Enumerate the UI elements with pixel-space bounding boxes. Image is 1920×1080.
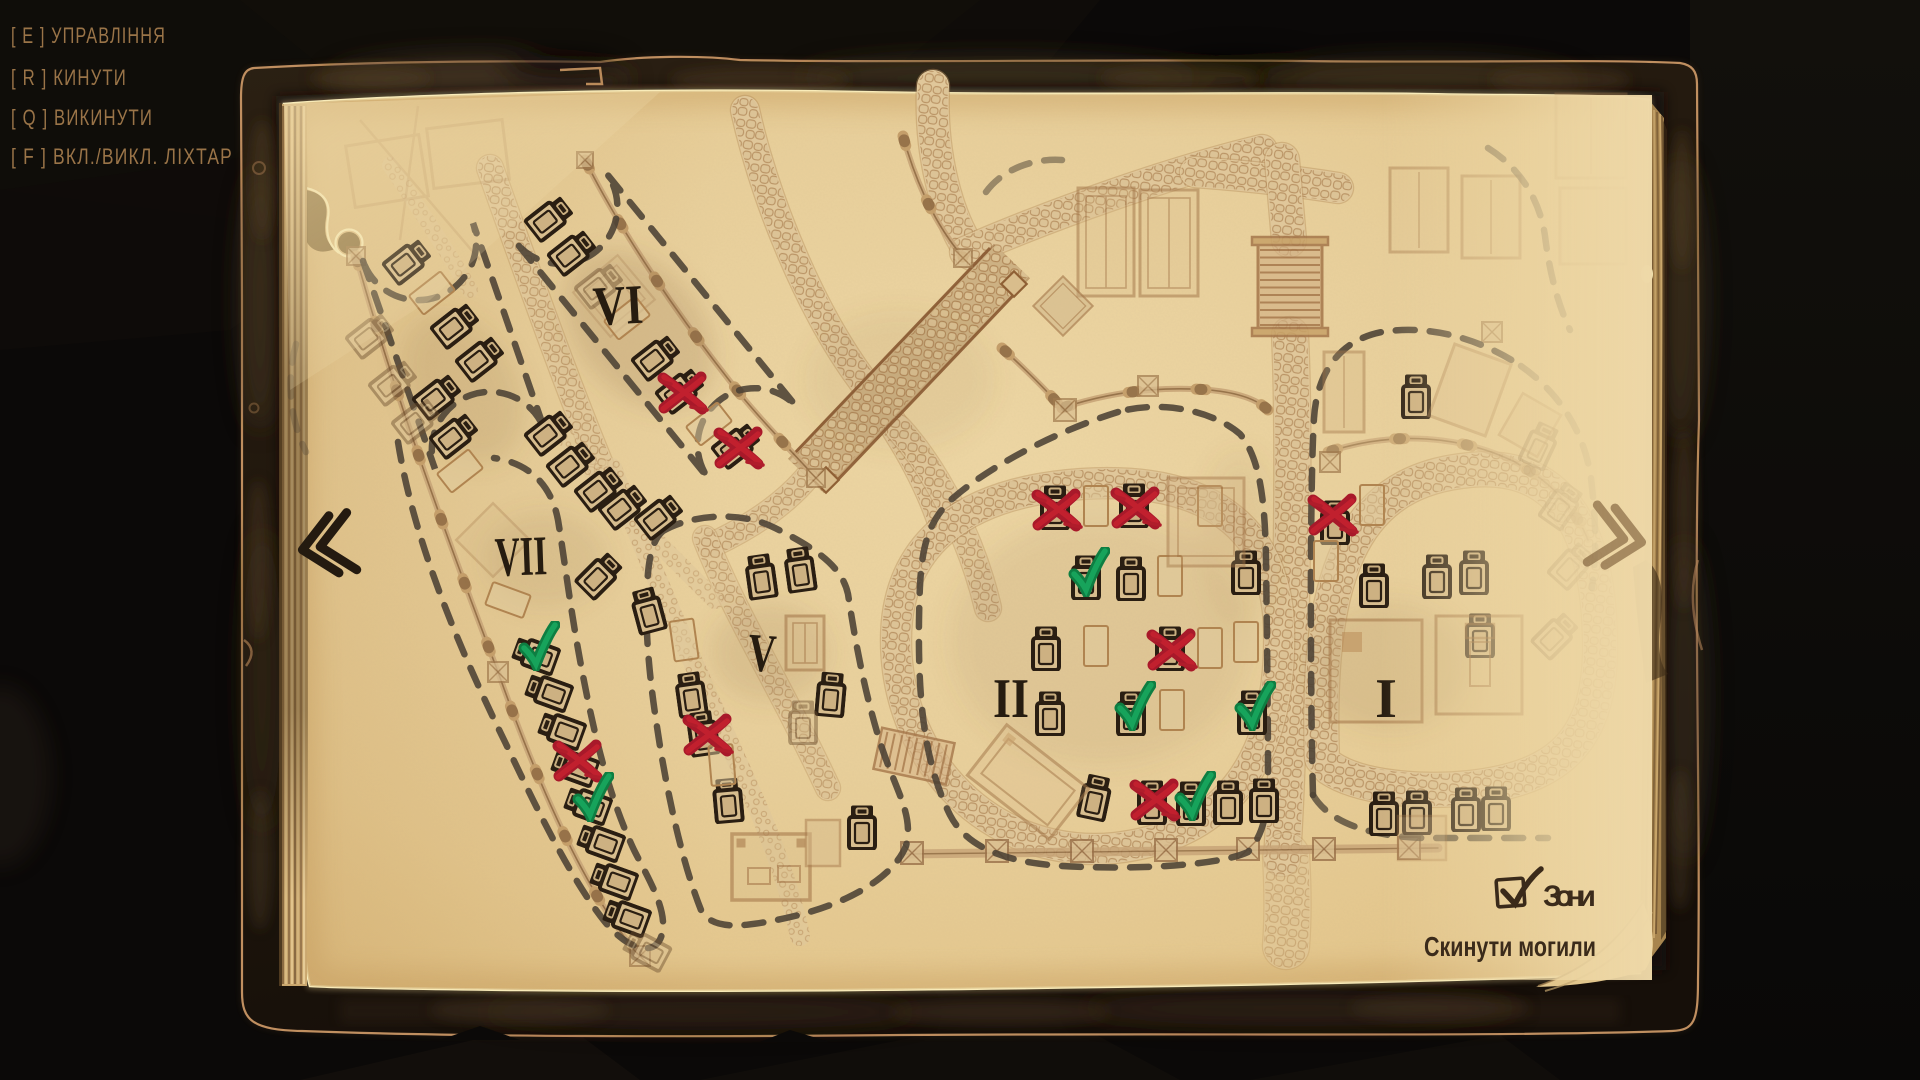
svg-text:Зони: Зони [1543,880,1596,913]
svg-text:V: V [746,622,778,684]
svg-text:[ F ] ВКЛ./ВИКЛ. ЛІХТАР: [ F ] ВКЛ./ВИКЛ. ЛІХТАР [11,144,233,169]
svg-text:Скинути могили: Скинути могили [1424,931,1596,962]
svg-text:[ R ] КИНУТИ: [ R ] КИНУТИ [11,65,127,90]
svg-text:VII: VII [494,525,548,589]
svg-text:VI: VI [591,274,644,339]
svg-text:II: II [993,668,1029,730]
svg-text:[ E ] УПРАВЛІННЯ: [ E ] УПРАВЛІННЯ [11,23,166,48]
svg-text:[ Q ] ВИКИНУТИ: [ Q ] ВИКИНУТИ [11,105,153,130]
